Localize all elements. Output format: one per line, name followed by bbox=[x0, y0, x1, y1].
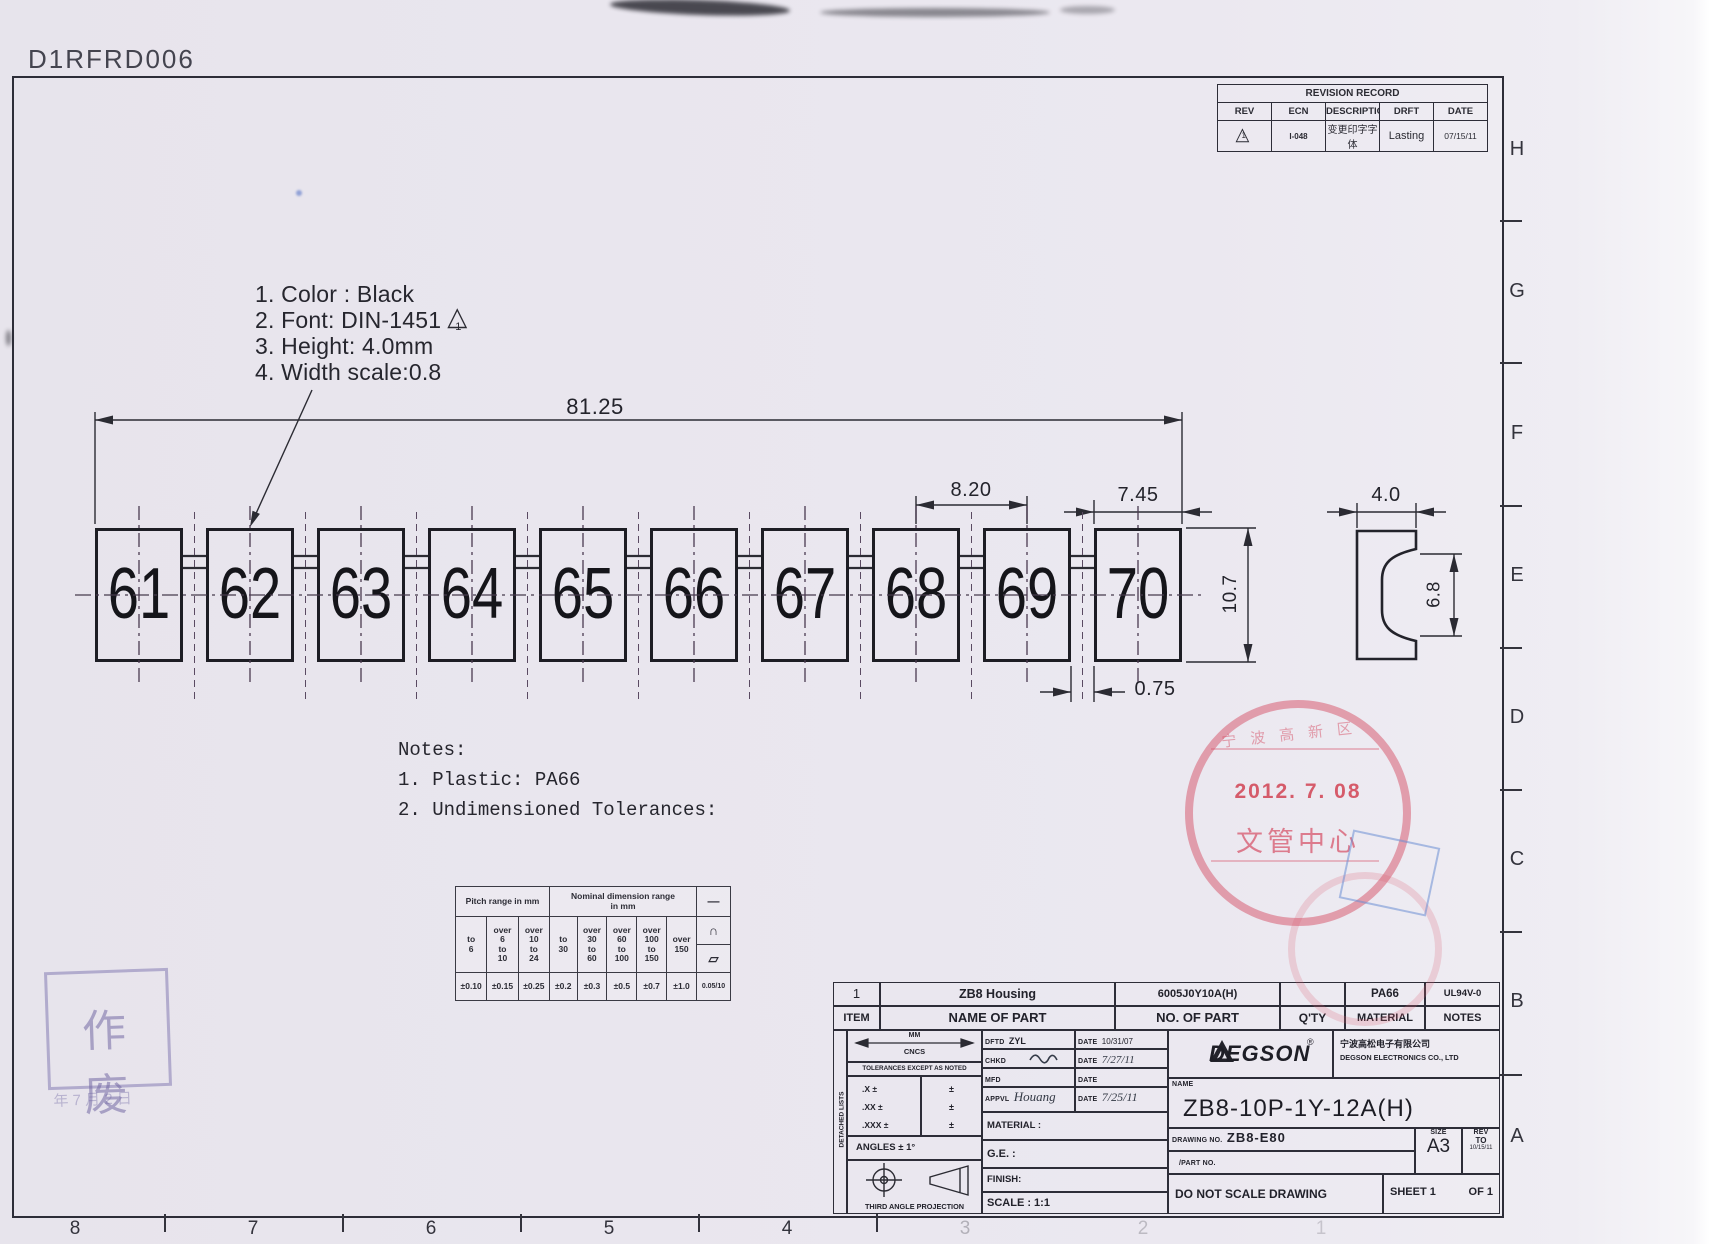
size-value: A3 bbox=[1416, 1136, 1461, 1158]
tol-decimals-cell: .X ± .XX ± .XXX ± bbox=[847, 1076, 921, 1136]
angles-cell: ANGLES ± 1° bbox=[847, 1136, 982, 1160]
header-item: ITEM bbox=[833, 1006, 880, 1030]
appvl-date: 7/25/11 bbox=[1102, 1090, 1138, 1104]
appvl-cell: APPVL Houang bbox=[982, 1087, 1075, 1112]
mfd-cell: MFD bbox=[982, 1068, 1075, 1087]
drawing-no: ZB8-E80 bbox=[1227, 1130, 1286, 1145]
name-label: NAME bbox=[1172, 1081, 1193, 1088]
projection-label: THIRD ANGLE PROJECTION bbox=[848, 1202, 981, 1211]
size-label: SIZE bbox=[1416, 1129, 1461, 1136]
dftd-value: ZYL bbox=[1009, 1036, 1026, 1046]
units-mm: MM bbox=[848, 1032, 981, 1039]
rev-label: REV bbox=[1463, 1129, 1499, 1136]
void-stamp-date: 年 7 月 2 日 bbox=[53, 1087, 132, 1111]
chkd-date: 7/27/11 bbox=[1102, 1054, 1135, 1066]
scanned-drawing-sheet: D1RFRD006 H G F E D C B A 8 7 6 5 4 3 2 … bbox=[0, 0, 1710, 1244]
company-cn: 宁波高松电子有限公司 bbox=[1334, 1031, 1499, 1050]
detached-lists-label: DETACHED LISTS bbox=[839, 1082, 846, 1158]
date-label: DATE bbox=[1076, 1077, 1097, 1084]
drawing-no-cell: DRAWING NO. ZB8-E80 bbox=[1168, 1128, 1415, 1151]
part-no-cell: /PART NO. bbox=[1168, 1151, 1415, 1174]
mfd-label: MFD bbox=[983, 1077, 1001, 1084]
do-not-scale: DO NOT SCALE DRAWING bbox=[1168, 1174, 1383, 1214]
tol-x: .X ± bbox=[862, 1080, 920, 1098]
profile-section bbox=[1357, 531, 1416, 659]
sheet-value: SHEET 1 bbox=[1390, 1186, 1436, 1198]
drawing-no-label: DRAWING NO. bbox=[1169, 1137, 1222, 1144]
pm: ± bbox=[922, 1098, 981, 1116]
dftd-date-cell: DATE 10/31/07 bbox=[1075, 1030, 1168, 1049]
tol-pm-cell: ± ± ± bbox=[921, 1076, 982, 1136]
name-cell: NAME ZB8-10P-1Y-12A(H) bbox=[1168, 1078, 1500, 1128]
appvl-date-cell: DATE 7/25/11 bbox=[1075, 1087, 1168, 1112]
sheet-of: OF 1 bbox=[1469, 1186, 1493, 1198]
tol-xx: .XX ± bbox=[862, 1098, 920, 1116]
projection-cell: THIRD ANGLE PROJECTION bbox=[847, 1160, 982, 1214]
brand-cell: DEGSON ® bbox=[1168, 1030, 1333, 1078]
chkd-date-cell: DATE 7/27/11 bbox=[1075, 1049, 1168, 1068]
tol-xxx: .XXX ± bbox=[862, 1116, 920, 1134]
header-no: NO. OF PART bbox=[1115, 1006, 1280, 1030]
size-cell: SIZE A3 bbox=[1415, 1128, 1462, 1174]
parts-notes: UL94V-0 bbox=[1425, 982, 1500, 1006]
header-notes: NOTES bbox=[1425, 1006, 1500, 1030]
rev-to: TO bbox=[1463, 1136, 1499, 1145]
dftd-date: 10/31/07 bbox=[1102, 1037, 1133, 1046]
appvl-label: APPVL bbox=[983, 1096, 1009, 1103]
date-label: DATE bbox=[1076, 1039, 1097, 1046]
detached-lists-strip: DETACHED LISTS bbox=[833, 1030, 847, 1214]
rev-date: 10/15/11 bbox=[1463, 1145, 1499, 1151]
brand-registered: ® bbox=[1307, 1037, 1314, 1047]
mfd-date-cell: DATE bbox=[1075, 1068, 1168, 1087]
sheet-cell: SHEET 1 OF 1 bbox=[1383, 1174, 1500, 1214]
stamp-date: 2012. 7. 08 bbox=[1193, 780, 1403, 804]
units-cell: MM CNCS bbox=[847, 1030, 982, 1062]
brand-name: DEGSON bbox=[1209, 1041, 1310, 1067]
void-stamp: 作 废 年 7 月 2 日 bbox=[44, 968, 172, 1090]
chkd-label: CHKD bbox=[983, 1058, 1006, 1065]
date-label: DATE bbox=[1076, 1096, 1097, 1103]
pm: ± bbox=[922, 1116, 981, 1134]
dftd-cell: DFTD ZYL bbox=[982, 1030, 1075, 1049]
chkd-cell: CHKD bbox=[982, 1049, 1075, 1068]
header-name: NAME OF PART bbox=[880, 1006, 1115, 1030]
part-no-label: /PART NO. bbox=[1169, 1160, 1216, 1167]
parts-no: 6005J0Y10A(H) bbox=[1115, 982, 1280, 1006]
material-row: MATERIAL : bbox=[982, 1112, 1168, 1140]
company-en: DEGSON ELECTRONICS CO., LTD bbox=[1334, 1050, 1499, 1062]
tolerances-note: TOLERANCES EXCEPT AS NOTED bbox=[847, 1062, 982, 1076]
rev-cell: REV TO 10/15/11 bbox=[1462, 1128, 1500, 1174]
company-cell: 宁波高松电子有限公司 DEGSON ELECTRONICS CO., LTD bbox=[1333, 1030, 1500, 1078]
units-cncs: CNCS bbox=[848, 1047, 981, 1056]
dftd-label: DFTD bbox=[983, 1039, 1004, 1046]
ge-row: G.E. : bbox=[982, 1140, 1168, 1168]
pm: ± bbox=[922, 1080, 981, 1098]
part-name: ZB8-10P-1Y-12A(H) bbox=[1183, 1095, 1414, 1123]
parts-item: 1 bbox=[833, 982, 880, 1006]
appvl-signature: Houang bbox=[1014, 1089, 1056, 1104]
parts-name: ZB8 Housing bbox=[880, 982, 1115, 1006]
stamp-arc-text: 宁波高新区 bbox=[1220, 713, 1391, 752]
date-label: DATE bbox=[1076, 1058, 1097, 1065]
finish-row: FINISH: bbox=[982, 1168, 1168, 1192]
scale-row: SCALE : 1:1 bbox=[982, 1192, 1168, 1214]
